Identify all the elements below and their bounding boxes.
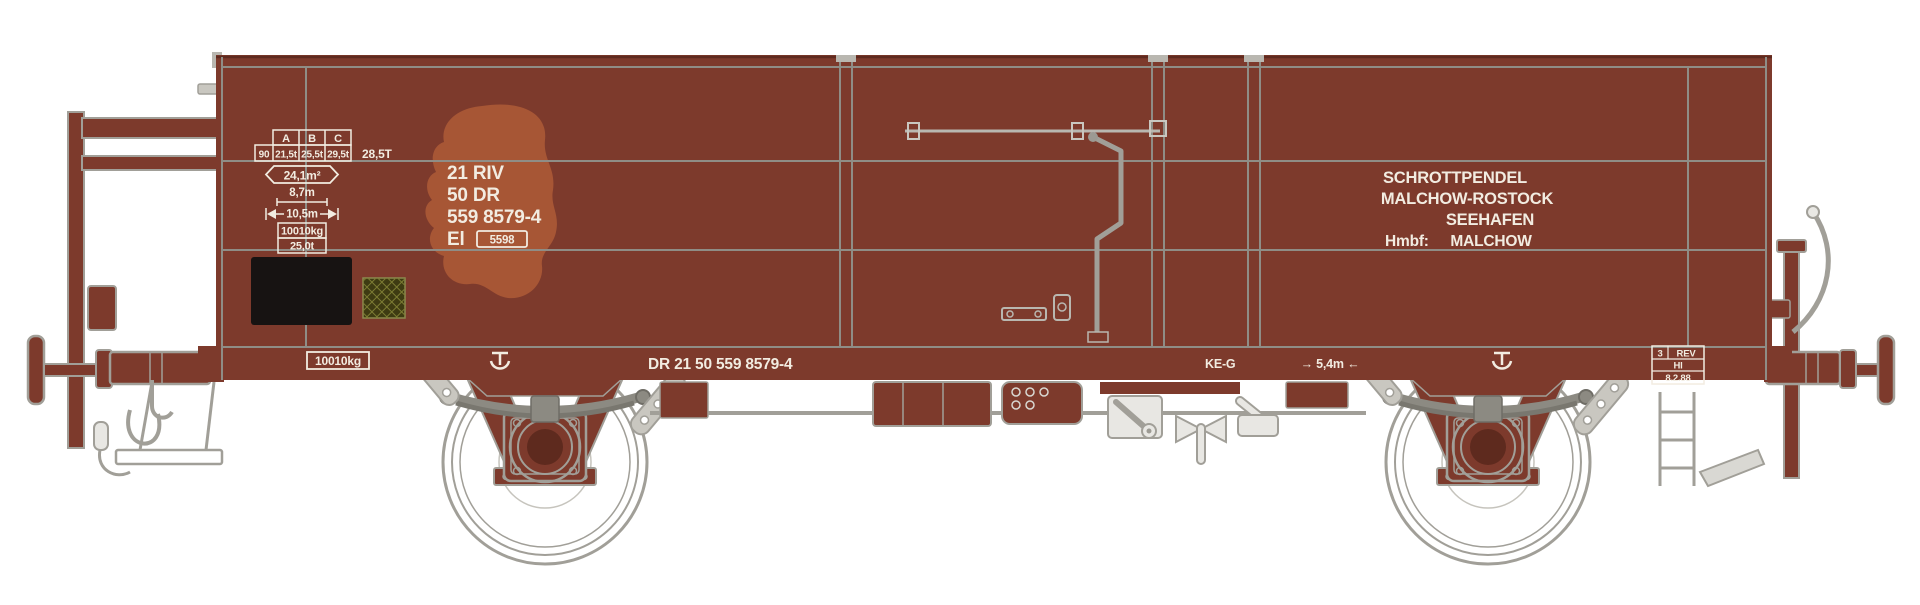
end-bracket (88, 286, 116, 330)
left-buffer-shank (44, 364, 98, 376)
brake-lever-pin (1147, 429, 1152, 434)
class-number: 5598 (490, 235, 516, 247)
rev-cell-2: REV (1677, 349, 1697, 360)
end-post-cap (1777, 240, 1806, 252)
coupling-hook (152, 380, 172, 418)
table-cell-c: 29,5t (327, 150, 350, 161)
underframe-rail (1100, 382, 1240, 394)
class-letters: El (447, 229, 465, 250)
route-line-2: MALCHOW-ROSTOCK (1381, 190, 1554, 208)
route-line-1: SCHROTTPENDEL (1383, 169, 1527, 187)
release-handle-stem (1197, 424, 1205, 464)
route-line-3: SEEHAFEN (1446, 211, 1534, 229)
axle-distance-note: → 5,4m ← (1301, 357, 1360, 371)
number-line-1: 21 RIV (447, 163, 504, 184)
left-wheel-assembly (412, 354, 689, 564)
table-cell-b: 25,5t (301, 150, 324, 161)
length-over-buffers: 10,5m (286, 209, 318, 221)
route-line-4-value: MALCHOW (1450, 233, 1532, 250)
solebar-tare: 10010kg (315, 354, 361, 368)
underframe-box-1 (660, 382, 708, 418)
step-support-2 (206, 382, 214, 450)
solebar-number: DR 21 50 559 8579-4 (648, 356, 793, 373)
rev-row-2: Hl (1673, 361, 1682, 372)
left-end-details (28, 52, 224, 475)
floor-area: 24,1m² (284, 169, 321, 183)
left-buffer-plate (28, 336, 44, 404)
table-cell-a: 21,5t (275, 150, 298, 161)
wagon-product-image: A B C 90 21,5t 25,5t 29,5t 28,5T 24,1m² … (0, 0, 1920, 605)
brake-hose-head (94, 422, 108, 450)
number-line-3: 559 8579-4 (447, 207, 542, 228)
corner-fitting (198, 84, 218, 94)
rev-cell-1: 3 (1657, 349, 1662, 360)
right-buffer-shank (1856, 364, 1880, 376)
inner-length: 8,7m (289, 187, 314, 199)
table-header-b: B (308, 133, 316, 145)
underframe-box-3 (1286, 382, 1348, 408)
step-support-1 (140, 382, 152, 450)
table-note: 28,5T (362, 147, 393, 161)
footboard (116, 450, 222, 464)
left-buffer-housing (110, 352, 210, 384)
table-cell-90: 90 (259, 150, 270, 161)
undercarriage (412, 354, 1632, 564)
end-arm-lower (82, 156, 218, 170)
handbrake-guide (1088, 332, 1108, 342)
repaint-patch-black (251, 257, 352, 325)
underframe-box-2 (873, 382, 991, 426)
handbrake-knob (1088, 132, 1098, 142)
right-wheel-assembly (1355, 354, 1632, 564)
number-line-2: 50 DR (447, 185, 500, 206)
end-arm-upper (82, 118, 218, 138)
wagon-illustration: A B C 90 21,5t 25,5t 29,5t 28,5T 24,1m² … (0, 0, 1920, 605)
tare-weight: 10010kg (281, 226, 323, 238)
hazard-patch-hatch-2 (363, 278, 405, 318)
rev-row-3: 8.2.88 (1665, 373, 1690, 384)
brake-type: KE-G (1205, 357, 1235, 371)
end-ladder (1660, 392, 1694, 486)
right-buffer-collar (1840, 350, 1856, 388)
table-header-c: C (334, 133, 342, 145)
brake-link-box (1238, 415, 1278, 436)
lever-knob (1807, 206, 1819, 218)
route-line-4-label: Hmbf: (1385, 233, 1429, 250)
right-buffer-plate (1878, 336, 1894, 404)
uncoupling-wedge (1700, 450, 1764, 486)
load-limit: 25,0t (290, 241, 315, 253)
table-header-a: A (282, 133, 290, 145)
